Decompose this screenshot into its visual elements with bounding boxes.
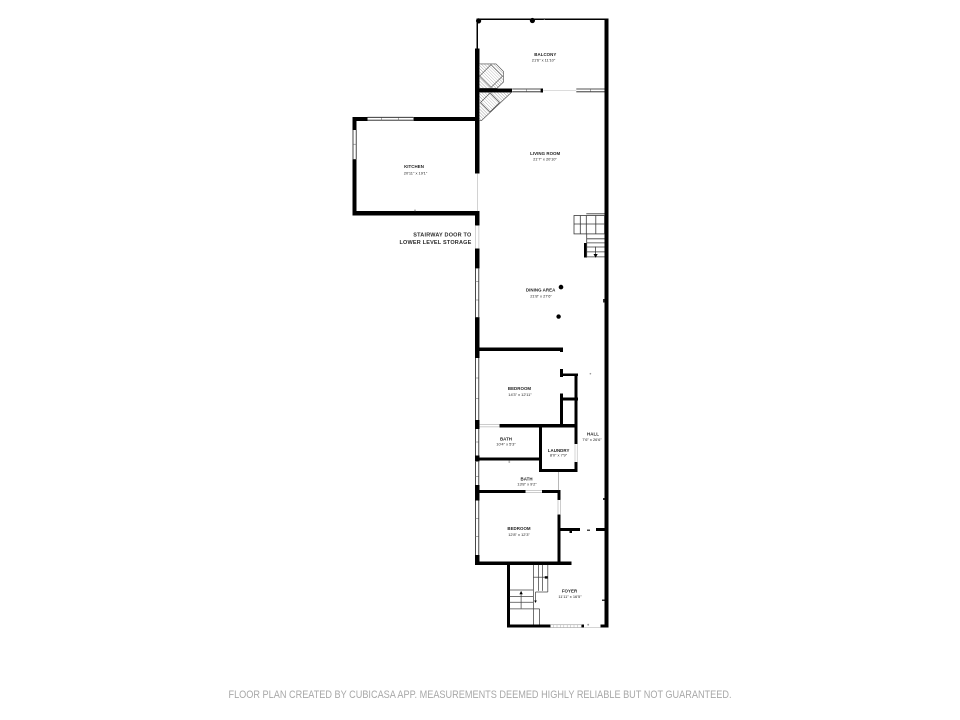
svg-text:8'0" x 7'9": 8'0" x 7'9" bbox=[550, 453, 568, 458]
svg-text:12'8" x 12'3": 12'8" x 12'3" bbox=[508, 532, 530, 537]
svg-text:KITCHEN: KITCHEN bbox=[404, 164, 424, 169]
svg-text:BALCONY: BALCONY bbox=[534, 52, 556, 57]
svg-text:HALL: HALL bbox=[587, 431, 599, 436]
svg-text:LIVING ROOM: LIVING ROOM bbox=[530, 151, 560, 156]
svg-text:21'7" x 20'10": 21'7" x 20'10" bbox=[533, 157, 557, 162]
svg-text:14'3" x 12'11": 14'3" x 12'11" bbox=[508, 392, 532, 397]
svg-text:7'6" x 26'6": 7'6" x 26'6" bbox=[582, 437, 602, 442]
svg-text:10'4" x 5'3": 10'4" x 5'3" bbox=[496, 442, 516, 447]
svg-text:13'8" x 9'2": 13'8" x 9'2" bbox=[517, 482, 537, 487]
svg-text:STAIRWAY DOOR TO: STAIRWAY DOOR TO bbox=[413, 233, 472, 239]
svg-text:BEDROOM: BEDROOM bbox=[508, 386, 532, 391]
svg-text:LOWER LEVEL STORAGE: LOWER LEVEL STORAGE bbox=[399, 240, 471, 246]
svg-text:FLOOR PLAN CREATED BY CUBICASA: FLOOR PLAN CREATED BY CUBICASA APP. MEAS… bbox=[229, 689, 732, 701]
svg-text:11'11" x 16'5": 11'11" x 16'5" bbox=[558, 594, 582, 599]
svg-text:DINING AREA: DINING AREA bbox=[526, 287, 556, 292]
svg-text:BEDROOM: BEDROOM bbox=[507, 526, 531, 531]
svg-text:21'6" x 11'10": 21'6" x 11'10" bbox=[532, 58, 556, 63]
svg-text:FOYER: FOYER bbox=[562, 589, 578, 594]
svg-text:BATH: BATH bbox=[500, 436, 512, 441]
svg-text:20'11" x 19'1": 20'11" x 19'1" bbox=[404, 170, 428, 175]
svg-text:21'8" x 27'6": 21'8" x 27'6" bbox=[530, 293, 552, 298]
